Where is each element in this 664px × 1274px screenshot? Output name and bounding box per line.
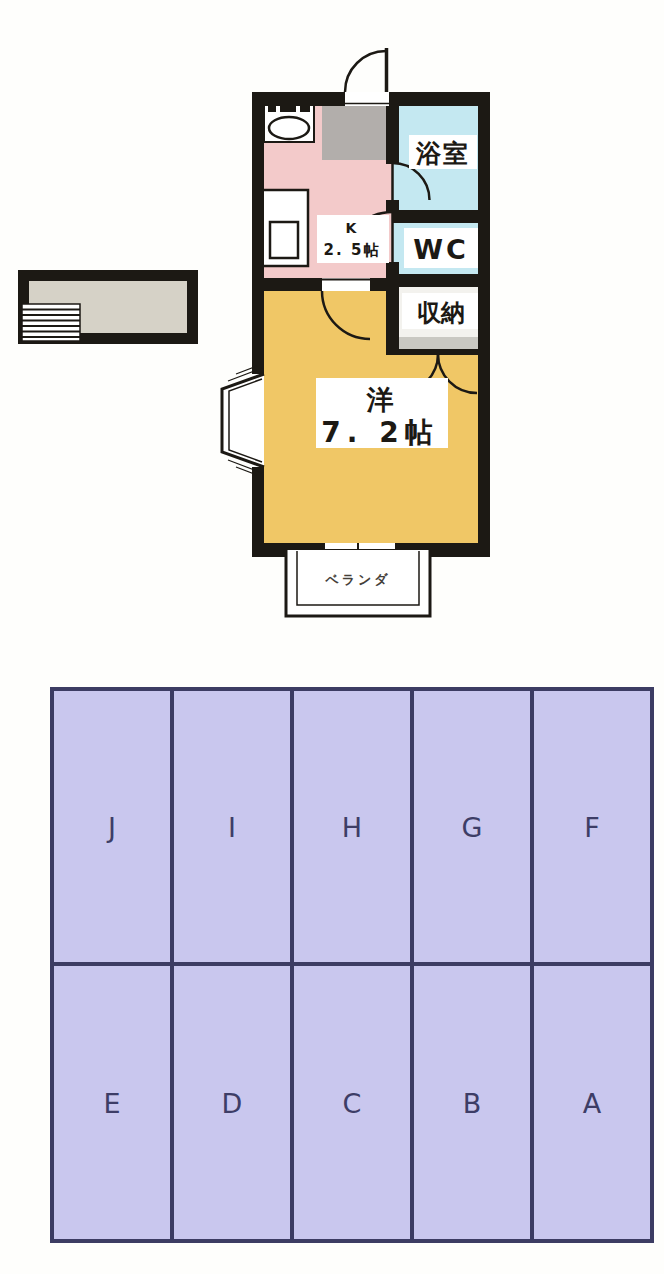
kitchen-counter: [262, 190, 308, 266]
closet-label: 収納: [417, 299, 465, 327]
toilet-label: WC: [413, 234, 469, 265]
wall-right: [478, 92, 490, 557]
property-layout-image: 浴室 WC 収納 K 2. 5帖 洋 7. 2帖 ベランダ: [0, 0, 664, 1274]
parking-lot: J I H G F E D C B A: [52, 689, 652, 1241]
wall-closet-bottom: [396, 349, 484, 355]
washbasin-shelf: [280, 105, 296, 112]
parking-label-i: I: [228, 812, 236, 843]
main-room-size-label: 7. 2帖: [321, 416, 438, 449]
balcony-label: ベランダ: [324, 572, 390, 587]
bathroom-label: 浴室: [415, 139, 470, 168]
wall-kitchen-room-right: [370, 278, 399, 291]
counter-sink: [270, 222, 298, 258]
parking-label-c: C: [343, 1088, 362, 1119]
wall-top-left: [252, 92, 345, 106]
main-room-type-label: 洋: [366, 384, 394, 415]
washbasin-accessory: [300, 105, 310, 112]
parking-label-a: A: [583, 1088, 602, 1119]
floor-plan-and-parking-canvas: 浴室 WC 収納 K 2. 5帖 洋 7. 2帖 ベランダ: [0, 0, 664, 1274]
wall-left-upper: [252, 92, 264, 374]
parking-label-h: H: [342, 812, 362, 843]
wall-bath-wc-divider: [392, 210, 484, 223]
wall-top-right: [389, 92, 490, 106]
wall-wc-closet-divider: [392, 274, 484, 287]
wall-interior-vertical-a: [386, 100, 399, 164]
kitchen-size-label: 2. 5帖: [324, 241, 381, 259]
parking-label-e: E: [103, 1088, 120, 1119]
balcony: ベランダ: [286, 550, 430, 616]
entrance-door-arc: [345, 51, 386, 92]
parking-label-g: G: [462, 812, 483, 843]
parking-label-j: J: [106, 812, 116, 843]
entrance-floor: [322, 100, 392, 160]
stairs: [22, 304, 80, 341]
washbasin-tap: [268, 105, 276, 112]
bay-window: [222, 366, 264, 475]
kitchen-type-label: K: [346, 220, 358, 236]
wall-left-lower: [252, 467, 264, 557]
parking-label-b: B: [463, 1088, 482, 1119]
parking-label-f: F: [584, 812, 600, 843]
parking-label-d: D: [222, 1088, 243, 1119]
washbasin-unit: [264, 104, 314, 142]
washbasin-bowl: [269, 117, 309, 139]
wall-kitchen-room-left: [258, 278, 322, 291]
exterior-stairs-annex: [22, 276, 193, 342]
